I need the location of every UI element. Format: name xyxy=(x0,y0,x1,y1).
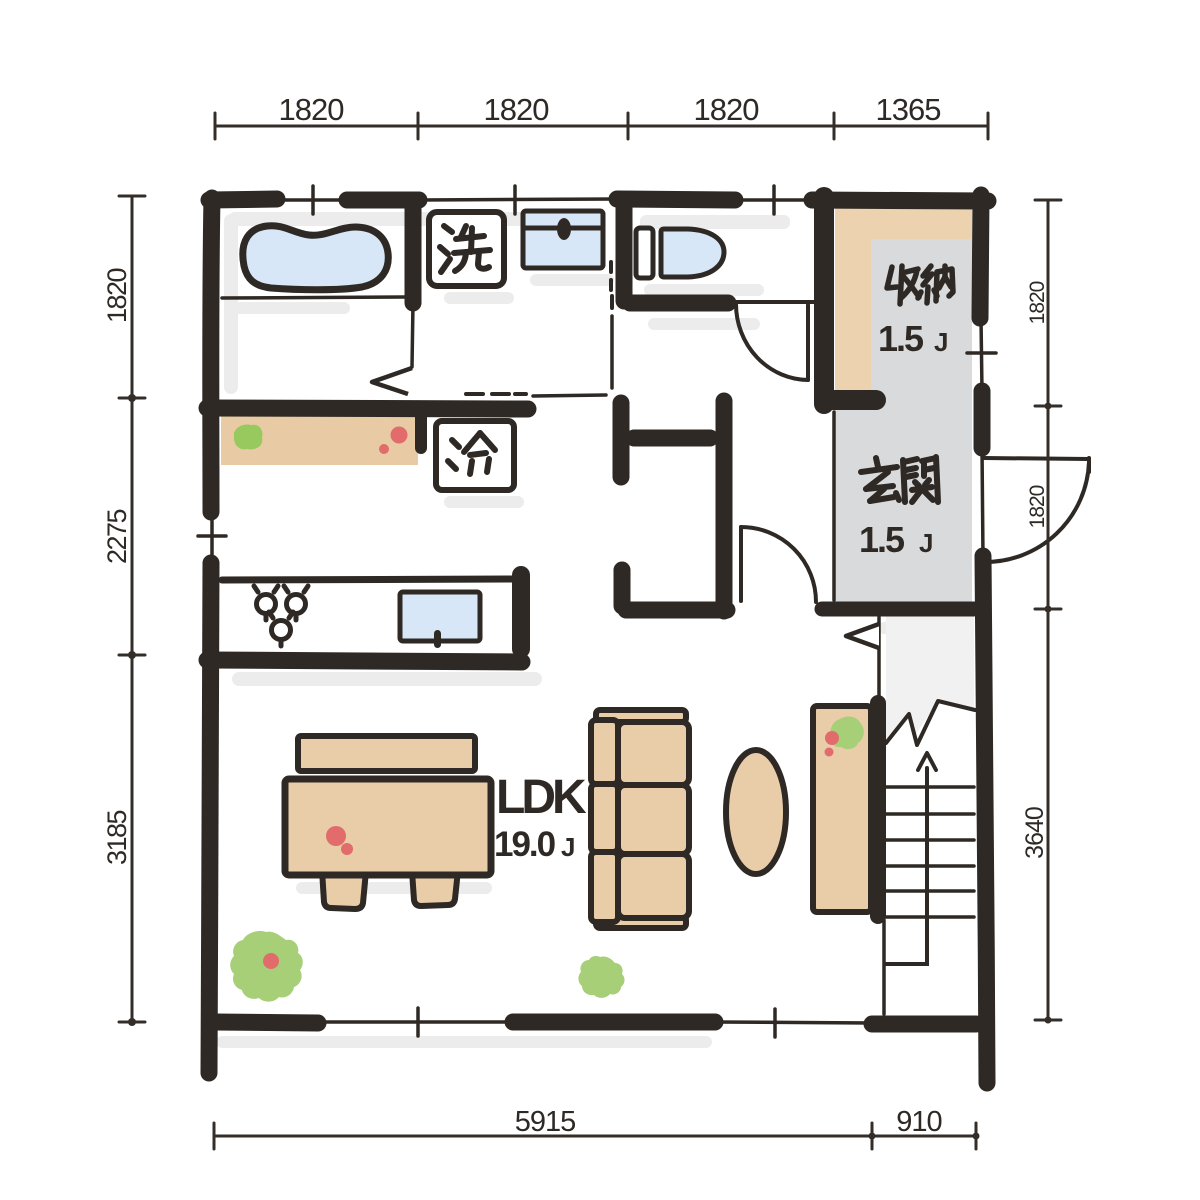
svg-text:1.5: 1.5 xyxy=(859,519,905,560)
svg-text:1.5: 1.5 xyxy=(878,318,924,359)
svg-text:1365: 1365 xyxy=(876,92,941,127)
svg-text:LDK: LDK xyxy=(496,771,587,824)
svg-text:1820: 1820 xyxy=(694,92,760,127)
svg-text:1820: 1820 xyxy=(1026,485,1049,528)
svg-text:J: J xyxy=(919,528,932,558)
svg-text:5915: 5915 xyxy=(515,1106,576,1138)
svg-text:1820: 1820 xyxy=(484,92,550,127)
svg-text:910: 910 xyxy=(896,1106,941,1138)
svg-text:1820: 1820 xyxy=(279,92,345,127)
svg-text:3640: 3640 xyxy=(1021,807,1049,859)
svg-text:3185: 3185 xyxy=(102,810,132,865)
svg-text:J: J xyxy=(561,832,574,862)
svg-text:2275: 2275 xyxy=(102,509,132,564)
svg-text:1820: 1820 xyxy=(1026,281,1049,324)
svg-text:J: J xyxy=(934,327,947,357)
svg-text:19.0: 19.0 xyxy=(494,825,556,864)
svg-text:1820: 1820 xyxy=(102,268,132,323)
